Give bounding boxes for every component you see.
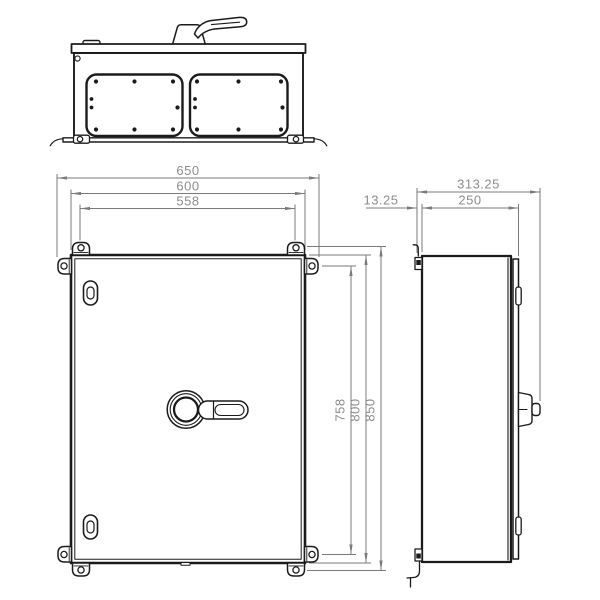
base-bar	[63, 138, 314, 142]
wall-bracket-top-side	[413, 245, 422, 270]
front-view	[58, 243, 318, 577]
dim-depth-overall: 313.25	[457, 177, 500, 192]
front-height-dimensions: 758 800 850	[307, 247, 386, 571]
side-view	[407, 245, 540, 587]
handle-side-view	[519, 393, 541, 427]
wall-bracket-bottom-side	[407, 549, 422, 587]
dim-height-mounting: 850	[363, 398, 378, 421]
dim-width-mounting: 558	[176, 194, 199, 209]
mounting-bracket-side-bottom-left	[58, 547, 72, 563]
handle-hub	[174, 398, 198, 422]
dim-depth-bracket: 13.25	[363, 193, 398, 208]
handle-knob-side	[532, 404, 540, 416]
lid-edge	[72, 44, 306, 53]
handle-top-view	[173, 17, 247, 44]
top-body	[74, 53, 303, 140]
dim-depth-body: 250	[458, 193, 481, 208]
mounting-ear-bottom-left	[73, 563, 90, 576]
enclosure-body-side	[422, 256, 511, 562]
enclosure-technical-drawing: 650 600 558 758 800 850	[0, 0, 600, 600]
mounting-ear-bottom-right	[288, 563, 305, 576]
dim-height-inner: 758	[333, 398, 348, 421]
mounting-ear-top-right	[288, 243, 305, 256]
handle-lever	[199, 401, 249, 419]
mounting-bracket-side-top-left	[58, 259, 72, 275]
mounting-bracket-side-bottom-right	[305, 547, 319, 563]
top-view	[50, 17, 327, 145]
hinge-top	[516, 287, 521, 305]
dim-width-body: 600	[176, 179, 199, 194]
front-width-dimensions: 650 600 558	[57, 163, 319, 257]
mounting-bracket-side-top-right	[305, 259, 319, 275]
hinge-bottom	[516, 517, 521, 535]
bottom-notch	[181, 563, 190, 565]
dim-height-body: 800	[348, 398, 363, 421]
dim-width-overall: 650	[176, 163, 199, 178]
drawing-canvas: 650 600 558 758 800 850	[0, 0, 600, 600]
mounting-ear-top-left	[73, 243, 90, 256]
